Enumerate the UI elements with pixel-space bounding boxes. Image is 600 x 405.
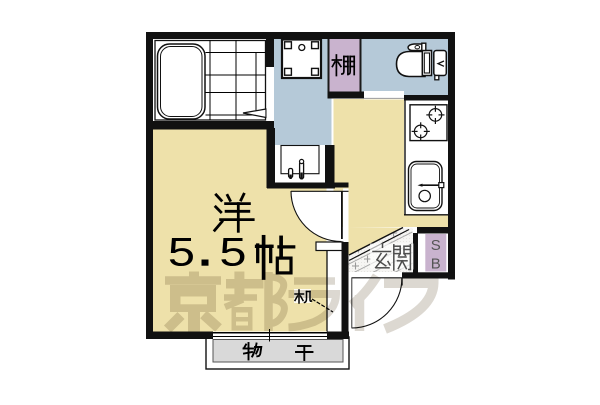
svg-text:B: B xyxy=(431,256,441,273)
svg-text:5: 5 xyxy=(168,231,195,275)
svg-text:S: S xyxy=(431,237,441,254)
svg-text:5: 5 xyxy=(219,231,246,275)
